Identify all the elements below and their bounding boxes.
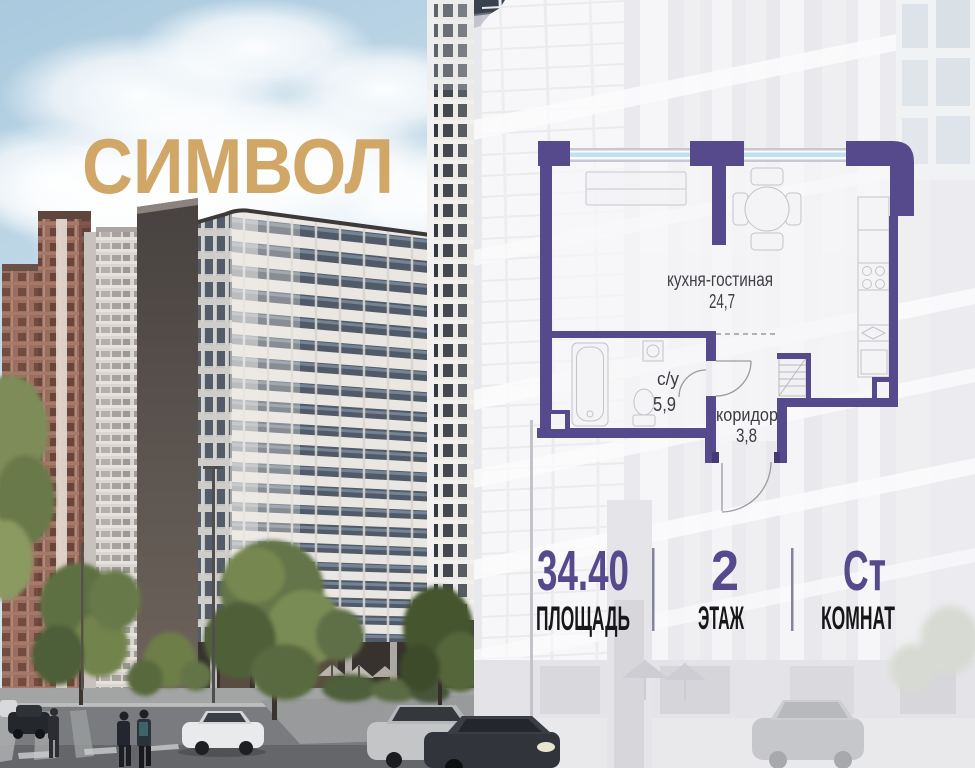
svg-text:5,9: 5,9 xyxy=(653,394,676,416)
svg-text:с/у: с/у xyxy=(657,369,679,389)
svg-text:34.40: 34.40 xyxy=(537,539,629,603)
svg-text:ЭТАЖ: ЭТАЖ xyxy=(698,600,745,636)
svg-text:3,8: 3,8 xyxy=(736,426,757,447)
svg-text:коридор: коридор xyxy=(716,405,778,425)
svg-text:2: 2 xyxy=(711,539,739,603)
svg-text:КОМНАТ: КОМНАТ xyxy=(821,600,895,636)
svg-text:ПЛОЩАДЬ: ПЛОЩАДЬ xyxy=(536,600,630,638)
svg-text:кухня-гостиная: кухня-гостиная xyxy=(667,270,773,291)
svg-text:Ст: Ст xyxy=(843,539,886,603)
svg-text:24,7: 24,7 xyxy=(709,290,735,313)
svg-text:СИМВОЛ: СИМВОЛ xyxy=(82,122,394,210)
